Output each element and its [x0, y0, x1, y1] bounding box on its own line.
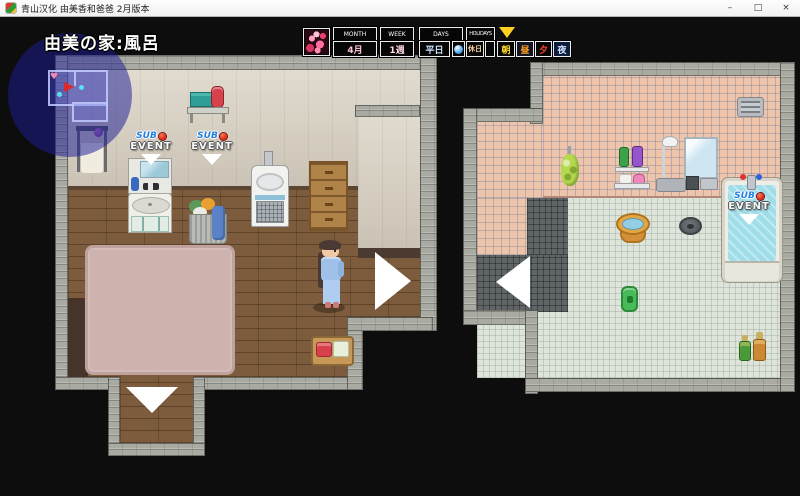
- close-button[interactable]: ×: [772, 0, 800, 16]
- time-morning-text: 朝: [501, 43, 510, 56]
- app-icon: [6, 3, 16, 13]
- green-pump-body: [739, 341, 751, 361]
- time-noon-text: 昼: [520, 43, 529, 56]
- blue-toiletry-bottle: [131, 177, 139, 191]
- purple-shampoo: [632, 146, 643, 167]
- bathroom-tile-wall-lefttail: [477, 198, 527, 255]
- shelf-top: [187, 107, 229, 114]
- green-pump-bottle: [739, 335, 751, 361]
- shampoo-shelf: [615, 146, 649, 173]
- wall-mirror: [684, 137, 718, 179]
- drawer-knob-4: [325, 218, 333, 221]
- tub-front-panel: [725, 261, 779, 281]
- bathroom-tile-wall-midleft: [477, 122, 543, 198]
- loofah-body: [561, 154, 579, 186]
- soap-tray: [614, 183, 650, 189]
- green-item-center: [627, 296, 633, 303]
- hud-holidays-value: 休日: [466, 41, 484, 57]
- sub-event-word2: EVENT: [190, 142, 234, 152]
- location-label: 由美の家:風呂: [44, 29, 160, 54]
- hud-days-label: DAYS: [419, 27, 463, 41]
- tub-faucet: [747, 175, 756, 190]
- hud-week-value: 1週: [380, 41, 414, 57]
- wall-faucet: [700, 178, 718, 190]
- bath-towel-item: [333, 341, 349, 357]
- tub-cold-tap-icon: [756, 174, 762, 180]
- calendar-art-icon: [303, 28, 330, 56]
- minimize-button[interactable]: –: [716, 0, 744, 16]
- sink-drain-dot: [148, 203, 152, 206]
- minimap-heart-icon: ♥: [50, 72, 58, 82]
- wooden-drawer-cabinet: [309, 161, 348, 231]
- alcove-front-wall: [358, 117, 420, 250]
- urinal: [249, 151, 291, 228]
- days-value-text: 平日: [425, 43, 443, 56]
- holidays-label-text: HOLIDAYS: [469, 31, 492, 37]
- character-slipper-right: [333, 302, 339, 308]
- hud-month-value: 4月: [333, 41, 377, 57]
- urinal-bowl: [256, 173, 284, 191]
- floor-drain: [679, 217, 702, 235]
- passage-wall-bottom: [108, 443, 205, 456]
- clothes-blue-drape: [212, 206, 225, 240]
- shower: [654, 136, 688, 194]
- character-arm: [338, 261, 344, 277]
- drawer-knob-2: [325, 187, 333, 190]
- orange-pump-bottle: [753, 332, 766, 361]
- red-bottle: [211, 86, 224, 108]
- month-label-text: MONTH: [344, 31, 367, 38]
- sink[interactable]: [128, 193, 172, 233]
- shelf-towel: [190, 92, 213, 107]
- bathroom-wall-left: [463, 108, 477, 325]
- vent-slats: [741, 101, 760, 113]
- sub-event-word1: SUB: [734, 192, 755, 201]
- soap-shelf: [614, 172, 650, 190]
- month-value-text: 4月: [347, 43, 362, 56]
- game-screen[interactable]: SUB EVENT SUB EVENT: [0, 16, 800, 496]
- sub-event-word1: SUB: [136, 132, 157, 141]
- drain-hole: [687, 224, 694, 229]
- orange-pump-body: [753, 339, 766, 361]
- sub-event-sink[interactable]: SUB EVENT: [129, 132, 173, 165]
- sub-event-word2: EVENT: [129, 142, 173, 152]
- bucket-water: [622, 218, 644, 230]
- bathroom-wall-lower-step: [463, 310, 530, 325]
- time-indicator-arrow-icon: [499, 27, 515, 38]
- extension-wall-bottom: [347, 317, 433, 331]
- event-badge-icon: [757, 193, 764, 200]
- minimap-room-2: [72, 102, 108, 122]
- character-slipper-left: [325, 302, 331, 308]
- left-room-wall-right: [420, 55, 437, 331]
- shelf-leg-b: [222, 114, 225, 123]
- hud-time-evening: 夕: [535, 41, 552, 57]
- toiletry-items: [143, 183, 159, 190]
- bath-tray[interactable]: [311, 336, 354, 366]
- hud-week-label: WEEK: [380, 27, 414, 41]
- hud-time-noon: 昼: [516, 41, 534, 57]
- cherry-blossom-art: [305, 30, 328, 54]
- event-badge-icon: [159, 133, 166, 140]
- sub-event-laundry[interactable]: SUB EVENT: [190, 132, 234, 165]
- laundry-basket[interactable]: [187, 198, 229, 244]
- hud-time-night: 夜: [553, 41, 571, 57]
- chevron-down-icon: [141, 154, 161, 165]
- chevron-down-icon: [202, 154, 222, 165]
- shower-valve: [656, 178, 686, 192]
- loofah: [560, 146, 580, 190]
- week-value-text: 1週: [389, 43, 404, 56]
- hud-time-morning: 朝: [497, 41, 515, 57]
- drawer-knob-1: [325, 171, 333, 174]
- green-shampoo: [619, 147, 629, 167]
- urinal-grate: [256, 201, 284, 223]
- holidays-value-text: 休日: [468, 44, 482, 54]
- hud-month-label: MONTH: [333, 27, 377, 41]
- blue-orb-icon: [454, 45, 463, 54]
- bathroom-floor-shadow-a: [527, 198, 568, 255]
- left-room-wall-bottom-right: [193, 377, 363, 390]
- sub-event-bathtub[interactable]: SUB EVENT: [727, 192, 771, 225]
- window-titlebar[interactable]: 青山汉化 由美香和爸爸 2月版本 – □ ×: [0, 0, 800, 17]
- bathroom-wall-top: [530, 62, 795, 76]
- girl-character: [313, 240, 345, 314]
- chevron-down-icon: [739, 214, 759, 225]
- sink-cabinet-front: [131, 216, 169, 232]
- hud-holidays-slot-box: [485, 41, 495, 57]
- vent-grille: [737, 97, 764, 117]
- hud-days-value: 平日: [419, 41, 450, 57]
- drawer-knob-3: [325, 203, 333, 206]
- character-pants: [323, 280, 340, 304]
- hud-holidays-label: HOLIDAYS: [466, 27, 495, 41]
- minimap-room-divider: [74, 72, 76, 86]
- character-hair-top: [319, 240, 341, 250]
- red-basin: [316, 342, 332, 357]
- sub-event-word2: EVENT: [727, 202, 771, 212]
- green-bath-item: [621, 286, 638, 312]
- left-room-wall-bottom-left: [55, 377, 110, 390]
- shelf-leg-a: [190, 114, 193, 123]
- wall-faucet-panel: [686, 176, 699, 190]
- wooden-bucket: [616, 211, 650, 247]
- sub-event-word1: SUB: [197, 132, 218, 141]
- week-label-text: WEEK: [388, 31, 405, 38]
- days-label-text: DAYS: [433, 31, 449, 38]
- minimap-event-dot-1: [57, 92, 62, 97]
- minimap-event-dot-2: [79, 85, 84, 90]
- alcove-baseboard: [358, 248, 420, 258]
- bathroom-wall-bottom: [525, 378, 794, 392]
- maximize-button[interactable]: □: [744, 0, 772, 16]
- alcove-cap-wall: [355, 105, 420, 117]
- tub-hot-tap-icon: [740, 174, 746, 180]
- wall-shelf: [187, 86, 232, 124]
- time-night-text: 夜: [557, 43, 566, 56]
- window-title: 青山汉化 由美香和爸爸 2月版本: [21, 2, 716, 15]
- bathroom-wall-right: [780, 62, 795, 392]
- urinal-water-strip: [255, 195, 285, 200]
- hud-days-orb-box: [452, 41, 465, 57]
- pink-carpet: [85, 245, 235, 375]
- event-badge-icon: [220, 133, 227, 140]
- character-eye: [334, 249, 336, 252]
- time-evening-text: 夕: [539, 43, 548, 56]
